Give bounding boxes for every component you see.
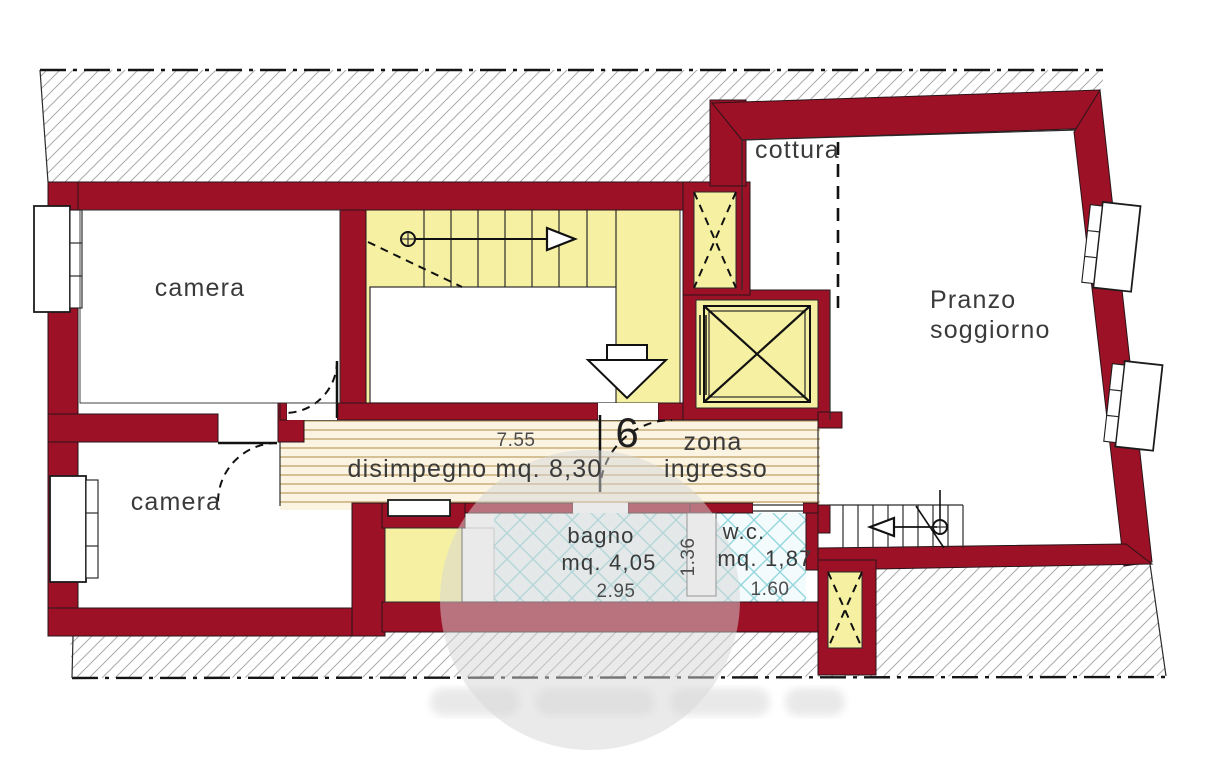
wall-camera1-right [340, 210, 366, 410]
camera2-window [50, 476, 98, 582]
watermark-wordmark [430, 688, 845, 716]
wall-right-wing-right [1074, 90, 1152, 566]
camera1-label: camera [155, 274, 246, 302]
wall-corridor-top-b [337, 403, 598, 420]
shaft-bottom [828, 572, 862, 648]
stair-landing [366, 210, 680, 403]
wc-label-line2: mq. 1,87 [717, 546, 812, 571]
soggiorno-window-2 [1103, 360, 1162, 451]
unit-number: 6 [615, 409, 638, 456]
dim-wc-width: 1.60 [751, 579, 790, 600]
stairwell-void [370, 287, 616, 403]
zona-label-line1: zona [683, 428, 742, 456]
pranzo-label-line1: Pranzo [930, 286, 1016, 314]
soggiorno-internal-stair [828, 490, 963, 548]
wall-between-cameras [48, 414, 218, 442]
shaft-top [694, 192, 736, 288]
closet-window [388, 500, 450, 516]
floor-plan-svg: camera camera cottura Pranzo soggiorno d… [0, 0, 1206, 768]
wall-closet-left [352, 503, 385, 636]
wc-label-line1: w.c. [722, 519, 766, 544]
wall-camera2-bottom [48, 608, 385, 636]
wall-corridor-top-a [280, 403, 287, 420]
dim-bagno-width: 2.95 [597, 581, 636, 602]
bagno-label-line2: mq. 4,05 [561, 550, 656, 575]
cottura-label: cottura [755, 136, 840, 164]
elevator [696, 300, 818, 408]
wall-wc-top-b [803, 503, 818, 513]
zona-label-line2: ingresso [664, 455, 768, 483]
camera2-door-arc [218, 443, 277, 502]
camera2-label: camera [131, 488, 222, 516]
stair-direction-left-icon [870, 490, 947, 536]
dim-bagno-wc-depth: 1.36 [678, 538, 699, 577]
wall-top-left-wing [48, 182, 748, 210]
bagno-label-line1: bagno [567, 523, 634, 548]
disimpegno-label: disimpegno mq. 8,30 [348, 455, 603, 483]
dim-corridor-length: 7.55 [497, 430, 536, 451]
wall-stair-stub [818, 505, 830, 533]
pranzo-label-line2: soggiorno [930, 316, 1051, 344]
soggiorno-window-1 [1081, 201, 1140, 292]
floor-plan-image: camera camera cottura Pranzo soggiorno d… [0, 0, 1206, 768]
camera1-window [34, 206, 82, 312]
